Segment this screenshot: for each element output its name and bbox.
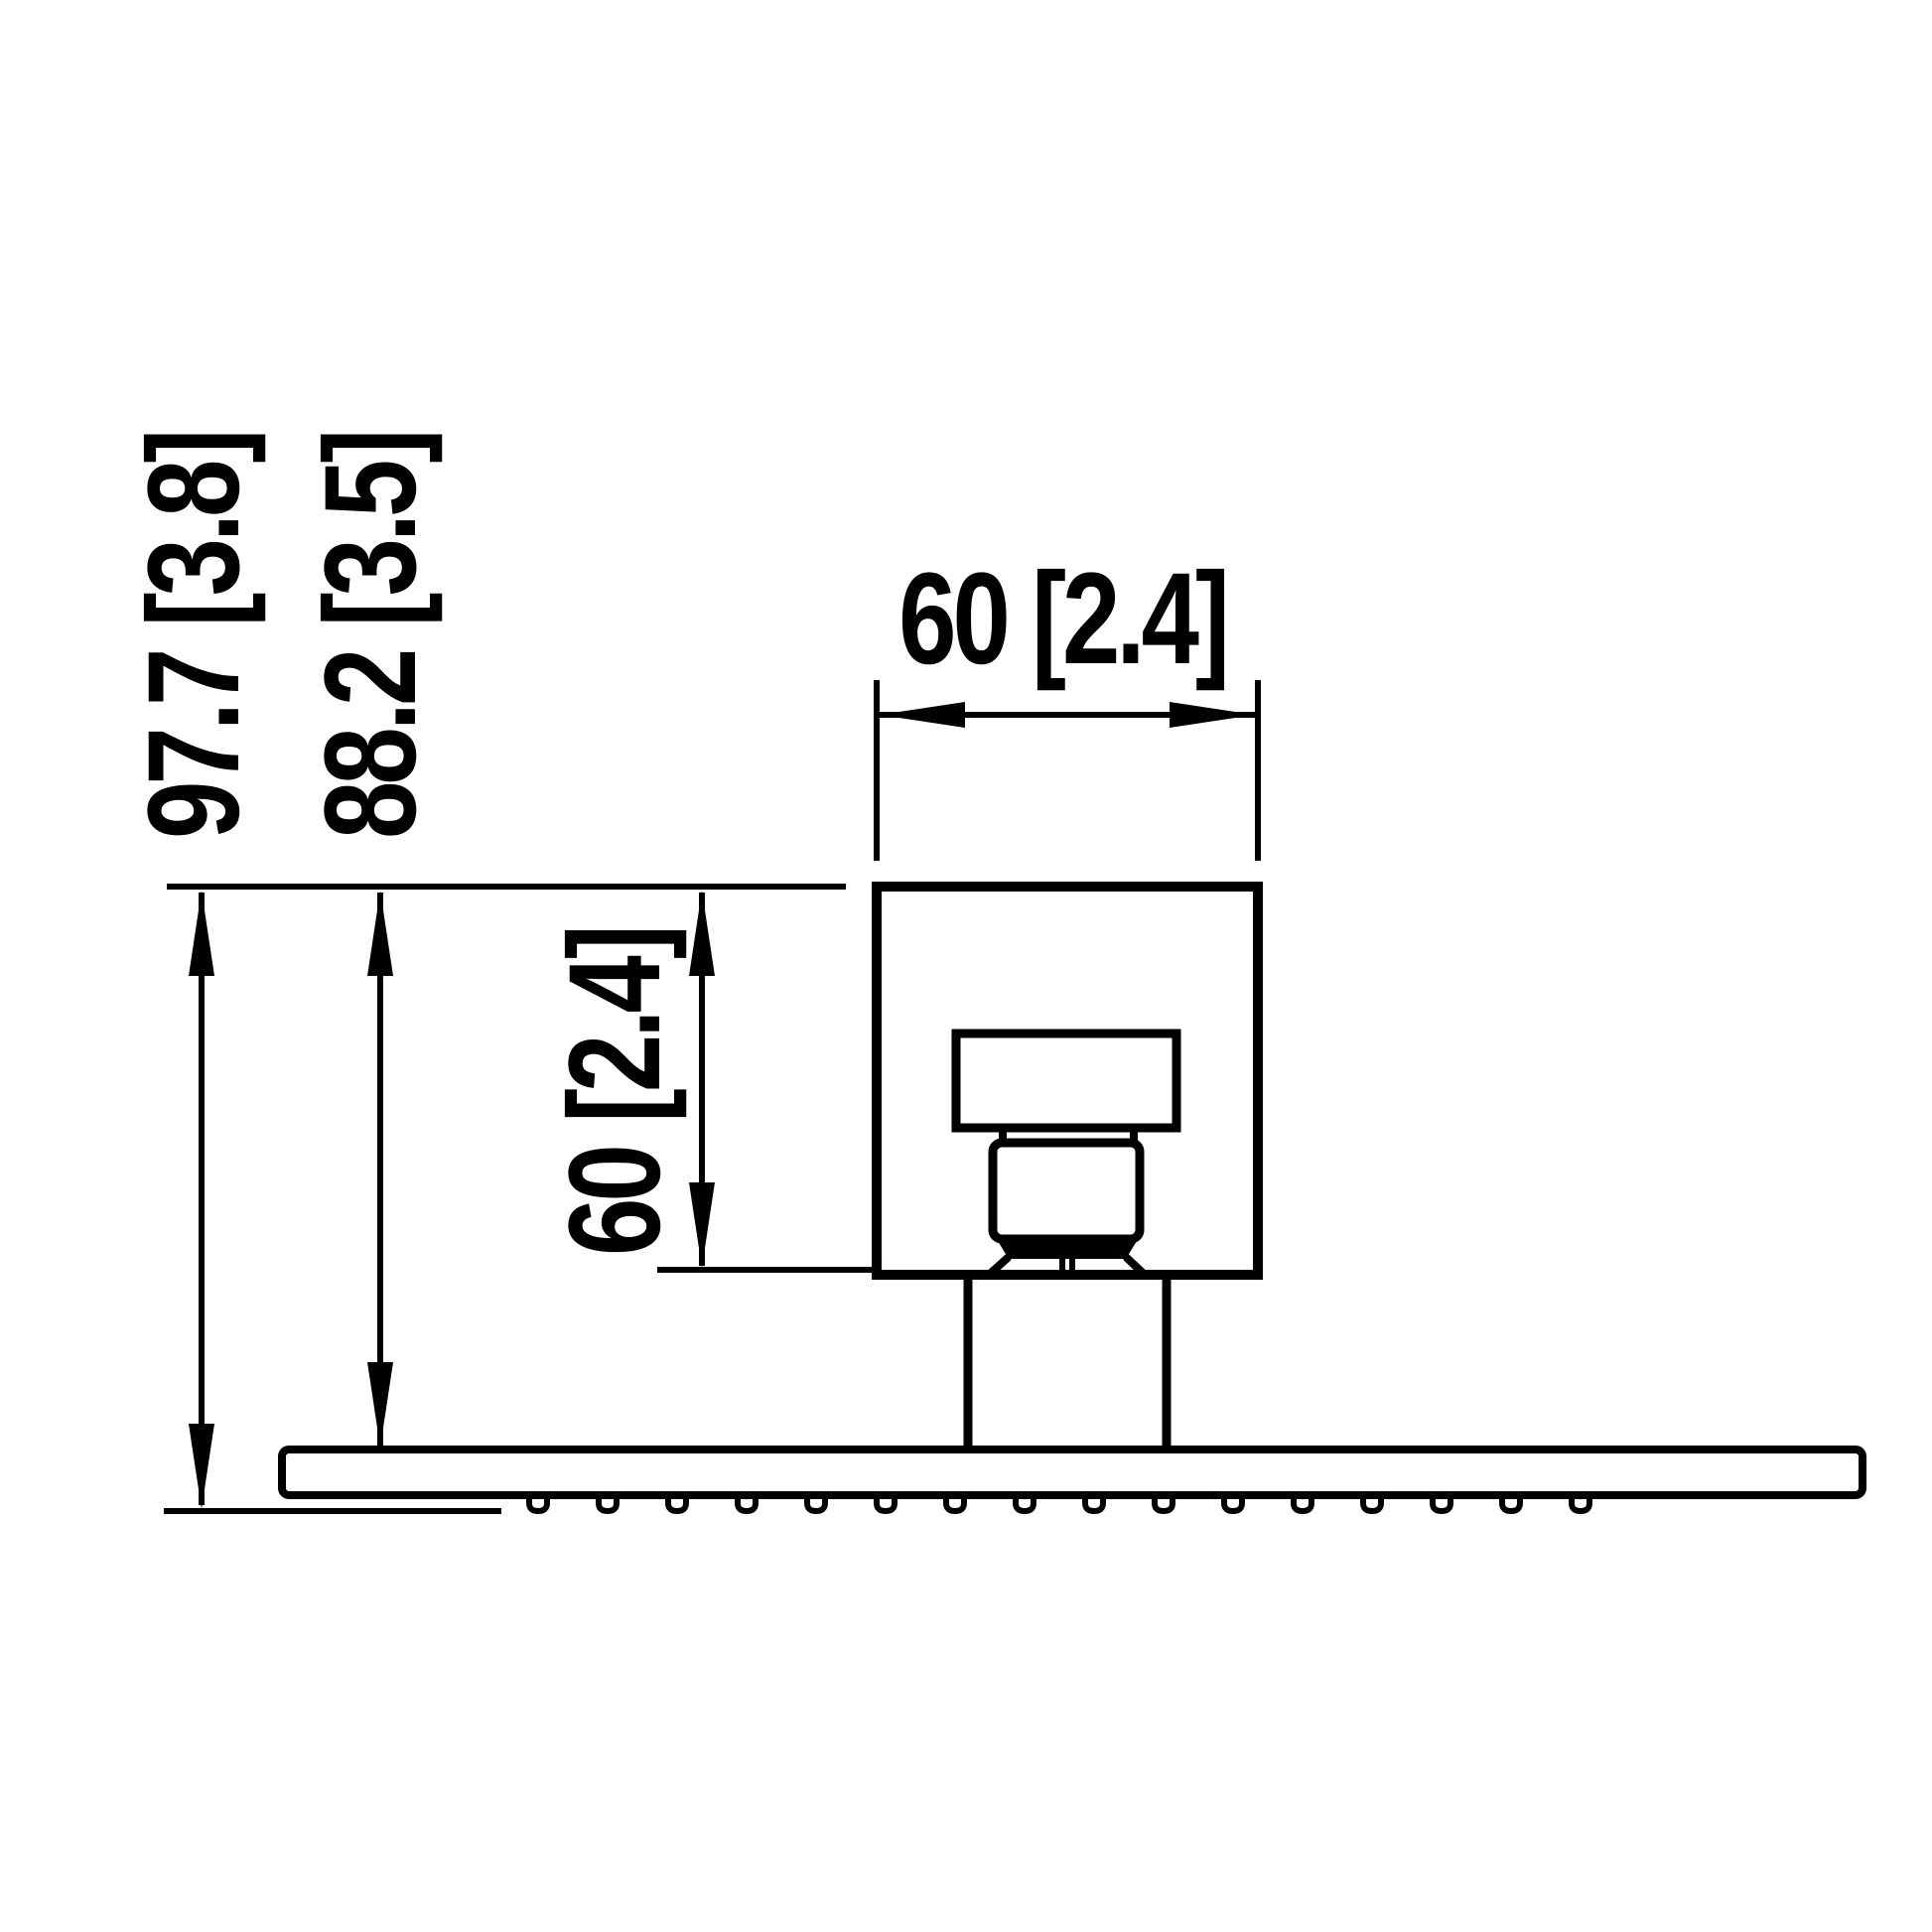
connector-upper-block — [956, 1034, 1176, 1128]
dim-box-height-arrow-up — [689, 891, 715, 976]
dim-box-width-arrow-right — [1170, 702, 1255, 728]
dim-box-width-label: 60 [2.4] — [898, 546, 1226, 692]
dim-plate-height-label: 88.2 [3.5] — [298, 433, 444, 839]
dim-plate-height-arrow-down — [367, 1362, 393, 1448]
dim-box-width-arrow-left — [880, 702, 965, 728]
dim-plate-height-arrow-up — [367, 891, 393, 976]
dim-total-height-label: 97.7 [3.8] — [121, 433, 267, 839]
locking-nut-band — [998, 1241, 1137, 1259]
dim-box-height-arrow-down — [689, 1182, 715, 1268]
shower-head-dimension-drawing: 97.7 [3.8] 88.2 [3.5] 60 [2.4] 60 [2.4] — [0, 0, 1932, 1932]
shower-plate — [282, 1449, 1863, 1495]
dim-total-height-arrow-down — [189, 1424, 214, 1509]
connector-lower-block — [993, 1143, 1140, 1239]
dim-total-height-arrow-up — [189, 891, 214, 976]
technical-drawing-canvas: 97.7 [3.8] 88.2 [3.5] 60 [2.4] 60 [2.4] — [0, 0, 1932, 1932]
dim-box-height-label: 60 [2.4] — [542, 928, 688, 1256]
